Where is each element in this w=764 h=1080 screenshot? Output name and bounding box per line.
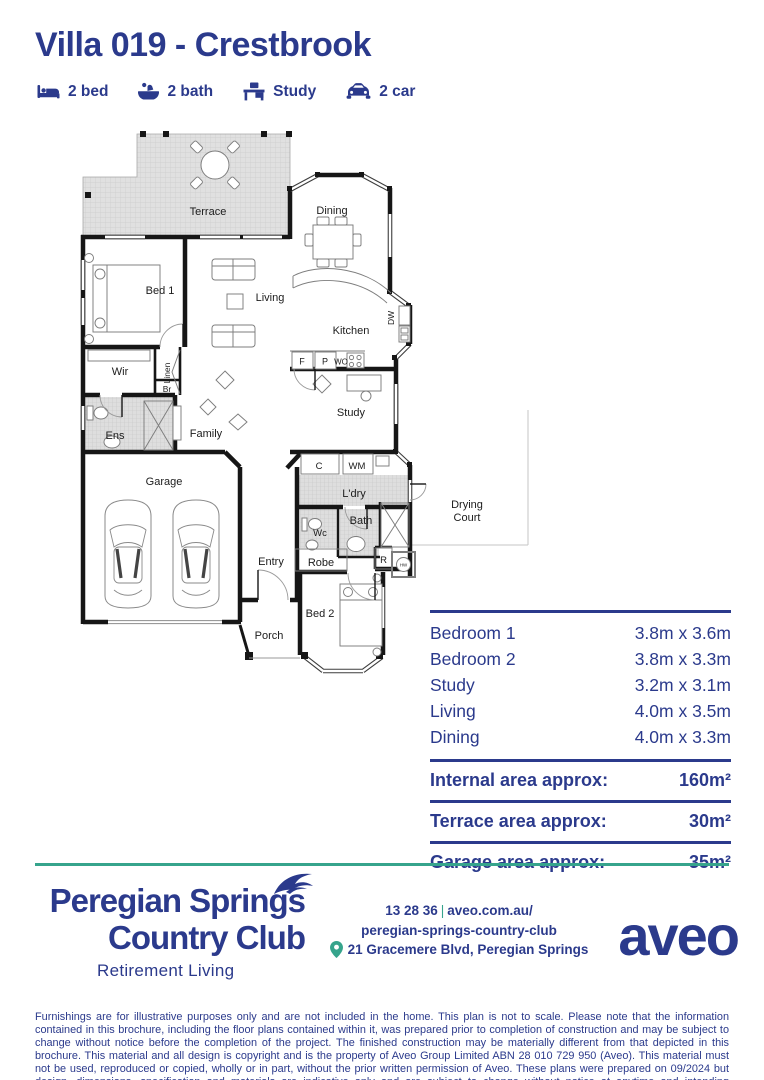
floor-plan: Terrace Dining Bed 1 Living Kitchen DW F… [60, 122, 532, 688]
contact-line1: 13 28 36|aveo.com.au/ [325, 901, 593, 921]
swoosh-bird-icon [272, 870, 316, 898]
room-name: Dining [430, 724, 480, 750]
bath-icon [138, 82, 159, 101]
study-desk-icon [243, 82, 265, 101]
room-size: 4.0m x 3.5m [635, 698, 731, 724]
room-label-wm: WM [349, 461, 366, 472]
room-label-linen: Linen [162, 362, 172, 383]
location-pin-icon [330, 941, 343, 958]
room-label-living: Living [256, 292, 285, 304]
contact-separator: | [438, 903, 448, 918]
contact-block: 13 28 36|aveo.com.au/ peregian-springs-c… [325, 901, 593, 964]
area-value: 30m² [689, 811, 731, 832]
room-label-robe: Robe [308, 557, 334, 569]
room-label-p: P [322, 357, 328, 367]
brochure-page: Villa 019 - Crestbrook 2 bed [0, 0, 764, 1080]
feature-car-label: 2 car [379, 83, 415, 101]
room-label-wc: Wc [313, 528, 327, 539]
room-label-ens: Ens [106, 430, 125, 442]
car-icon [346, 83, 371, 101]
room-label-bed1: Bed 1 [146, 285, 175, 297]
brand-tagline: Retirement Living [97, 961, 234, 981]
room-name: Bedroom 2 [430, 646, 516, 672]
feature-bath-label: 2 bath [167, 83, 213, 101]
room-dimensions-section: Bedroom 1 3.8m x 3.6m Bedroom 2 3.8m x 3… [430, 610, 731, 759]
room-label-wir: Wir [112, 366, 129, 378]
dimension-row-bedroom2: Bedroom 2 3.8m x 3.3m [430, 646, 731, 672]
room-label-wo: WO [334, 358, 348, 367]
room-name: Bedroom 1 [430, 620, 516, 646]
room-size: 3.2m x 3.1m [635, 672, 731, 698]
feature-bath: 2 bath [138, 82, 213, 101]
area-value: 160m² [679, 770, 731, 791]
internal-area-row: Internal area approx: 160m² [430, 759, 731, 800]
room-label-drying-court-2: Court [454, 512, 481, 524]
room-label-drying-court-1: Drying [451, 499, 483, 511]
room-label-bed2: Bed 2 [306, 608, 335, 620]
room-name: Living [430, 698, 476, 724]
room-size: 4.0m x 3.3m [635, 724, 731, 750]
room-size: 3.8m x 3.3m [635, 646, 731, 672]
room-label-br: Br [163, 384, 172, 394]
room-label-ldry: L'dry [342, 488, 366, 500]
footer-divider [35, 863, 729, 866]
terrace-area-row: Terrace area approx: 30m² [430, 800, 731, 841]
area-label: Internal area approx: [430, 770, 608, 791]
room-label-hw: HW [400, 563, 408, 568]
room-label-dining: Dining [316, 205, 347, 217]
feature-study-label: Study [273, 83, 316, 101]
area-label: Terrace area approx: [430, 811, 607, 832]
room-label-entry: Entry [258, 556, 284, 568]
feature-bed: 2 bed [37, 83, 108, 101]
feature-row: 2 bed 2 bath Stu [37, 82, 415, 101]
room-size: 3.8m x 3.6m [635, 620, 731, 646]
room-label-family: Family [190, 428, 223, 440]
room-label-r: R [380, 555, 387, 566]
dimensions-table: Bedroom 1 3.8m x 3.6m Bedroom 2 3.8m x 3… [430, 610, 731, 882]
dimension-row-bedroom1: Bedroom 1 3.8m x 3.6m [430, 620, 731, 646]
room-label-dw: DW [386, 311, 396, 325]
contact-phone: 13 28 36 [385, 903, 438, 918]
page-title: Villa 019 - Crestbrook [35, 26, 371, 65]
brand-line1: Peregian Springs [35, 882, 305, 919]
dimension-row-study: Study 3.2m x 3.1m [430, 672, 731, 698]
contact-url: aveo.com.au/ [447, 903, 533, 918]
aveo-logo: aveo [598, 906, 738, 966]
room-label-terrace: Terrace [190, 206, 227, 218]
disclaimer-text: Furnishings are for illustrative purpose… [35, 1011, 729, 1080]
room-label-f: F [299, 357, 305, 367]
room-label-garage: Garage [146, 476, 183, 488]
contact-address-line: 21 Gracemere Blvd, Peregian Springs [330, 940, 589, 960]
dimension-row-dining: Dining 4.0m x 3.3m [430, 724, 731, 750]
garage-area-row: Garage area approx: 35m² [430, 841, 731, 882]
brand-line2: Country Club [35, 919, 305, 956]
room-label-study: Study [337, 407, 366, 419]
feature-bed-label: 2 bed [68, 83, 108, 101]
address-text: 21 Gracemere Blvd, Peregian Springs [348, 940, 589, 960]
bed-icon [37, 83, 60, 101]
feature-study: Study [243, 82, 316, 101]
room-name: Study [430, 672, 475, 698]
room-label-c: C [316, 461, 323, 472]
room-label-porch: Porch [255, 630, 284, 642]
drying-court-lines [412, 410, 528, 545]
room-label-kitchen: Kitchen [333, 325, 370, 337]
brand-logo: Peregian Springs Country Club [35, 882, 305, 956]
contact-line2: peregian-springs-country-club [325, 921, 593, 941]
feature-car: 2 car [346, 83, 415, 101]
dimension-row-living: Living 4.0m x 3.5m [430, 698, 731, 724]
room-label-bath: Bath [350, 515, 373, 527]
